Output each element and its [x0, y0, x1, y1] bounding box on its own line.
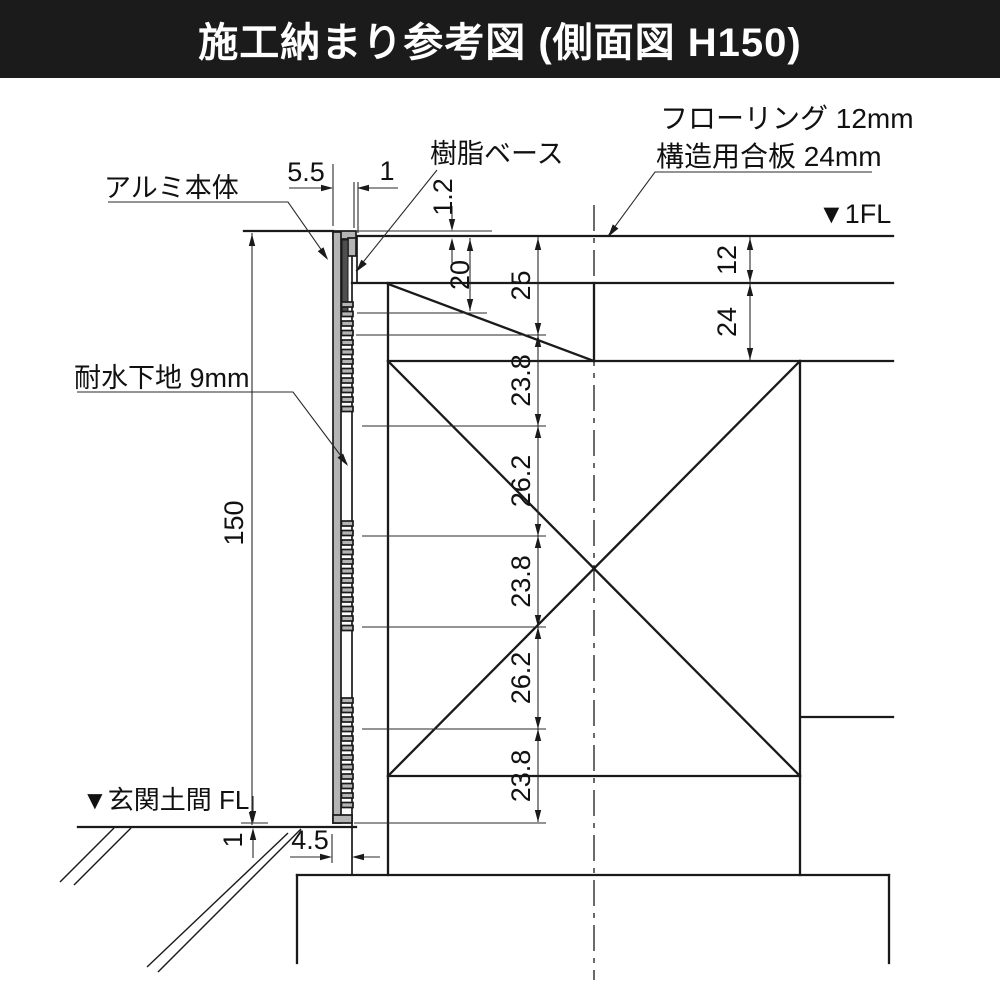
dimension-lines — [252, 188, 750, 858]
profile-web — [333, 232, 341, 823]
profile-top-hook — [348, 238, 356, 256]
arrowhead — [535, 627, 541, 639]
drawing-page: 施工納まり参考図 (側面図 H150) — [0, 0, 1000, 1000]
ground-hatch-4 — [147, 833, 288, 967]
profile-bottom-lip — [333, 815, 352, 823]
ground-hatch-1 — [74, 828, 131, 885]
ground-hatch-2 — [60, 828, 114, 882]
arrowhead — [535, 729, 541, 741]
dim-chain-3: 23.8 — [506, 555, 536, 608]
arrowhead — [535, 426, 541, 438]
arrowhead — [449, 219, 455, 231]
grip-tooth — [342, 774, 354, 779]
dim-1-bottom: 1 — [218, 832, 248, 847]
grip-tooth — [342, 312, 354, 317]
construction-detail-drawing: フローリング 12mm 構造用合板 24mm アルミ本体 樹脂ベース 耐水下地 … — [0, 0, 1000, 1000]
text-labels: フローリング 12mm 構造用合板 24mm アルミ本体 樹脂ベース 耐水下地 … — [74, 103, 914, 855]
arrowhead — [747, 348, 753, 360]
grip-tooth — [342, 708, 354, 713]
first-floor-marker: ▼1FL — [818, 199, 891, 229]
grip-tooth — [342, 340, 354, 345]
grip-tooth — [342, 727, 354, 732]
dim-1-2: 1.2 — [428, 178, 458, 216]
arrowhead — [352, 854, 364, 860]
arrowhead — [747, 238, 753, 250]
arrowhead — [249, 234, 255, 246]
grip-tooth — [342, 550, 354, 555]
drawing-title: 施工納まり参考図 (側面図 H150) — [198, 10, 802, 68]
arrowhead — [535, 810, 541, 822]
dim-chain-0: 25 — [506, 270, 536, 300]
arrowhead — [535, 323, 541, 335]
arrowhead — [467, 239, 473, 251]
grip-tooth — [342, 793, 354, 798]
arrowhead — [535, 238, 541, 250]
grip-tooth — [342, 559, 354, 564]
dim-4-5: 4.5 — [291, 825, 329, 855]
grip-tooth — [342, 521, 354, 526]
profile-grip-teeth — [342, 302, 354, 808]
arrowhead — [467, 299, 473, 311]
arrowhead — [747, 270, 753, 282]
grip-tooth — [342, 717, 354, 722]
aluminum-body-label: アルミ本体 — [104, 173, 239, 203]
flooring-label: フローリング 12mm — [660, 103, 914, 134]
arrowhead — [747, 284, 753, 296]
arrowhead — [318, 247, 328, 260]
dim-24: 24 — [712, 307, 742, 337]
dim-5-5: 5.5 — [287, 157, 325, 187]
grip-tooth — [342, 616, 354, 621]
grip-tooth — [342, 588, 354, 593]
grip-tooth — [342, 698, 354, 703]
arrowhead — [357, 185, 369, 191]
arrowhead — [449, 238, 455, 250]
grip-tooth — [342, 784, 354, 789]
arrowhead — [535, 414, 541, 426]
grip-tooth — [342, 765, 354, 770]
arrowhead — [250, 828, 256, 840]
grip-tooth — [342, 359, 354, 364]
grip-tooth — [342, 569, 354, 574]
grip-tooth — [342, 378, 354, 383]
dim-chain-1: 23.8 — [506, 354, 536, 407]
grip-tooth — [342, 540, 354, 545]
grip-tooth — [342, 597, 354, 602]
grip-tooth — [342, 369, 354, 374]
foundation — [60, 827, 889, 972]
grip-tooth — [342, 302, 354, 307]
grip-tooth — [342, 407, 354, 412]
grip-tooth — [342, 803, 354, 808]
grip-tooth — [342, 746, 354, 751]
arrowhead — [535, 615, 541, 627]
grip-tooth — [342, 755, 354, 760]
leader-substrate — [77, 392, 347, 464]
dimension-arrowheads — [249, 185, 753, 860]
grip-tooth — [342, 531, 354, 536]
grip-tooth — [342, 578, 354, 583]
extension-lines — [241, 164, 546, 863]
grip-tooth — [342, 736, 354, 741]
dim-12: 12 — [712, 245, 742, 275]
dim-chain-4: 26.2 — [506, 652, 536, 705]
arrowhead — [535, 536, 541, 548]
framing-x-brace-box — [388, 283, 893, 875]
title-bar: 施工納まり参考図 (側面図 H150) — [0, 0, 1000, 78]
entrance-floor-marker: ▼玄関土間 FL — [82, 785, 249, 815]
dim-chain-5: 23.8 — [506, 750, 536, 803]
grip-tooth — [342, 350, 354, 355]
resin-base-label: 樹脂ベース — [430, 139, 564, 169]
arrowhead — [535, 717, 541, 729]
grip-tooth — [342, 321, 354, 326]
dim-20: 20 — [445, 260, 475, 290]
upper-diagonal-line — [388, 284, 594, 361]
dim-150: 150 — [219, 500, 249, 545]
substrate-label: 耐水下地 9mm — [74, 363, 250, 393]
grip-tooth — [342, 331, 354, 336]
plywood-label: 構造用合板 24mm — [656, 141, 882, 172]
grip-tooth — [342, 607, 354, 612]
arrowhead — [535, 524, 541, 536]
grip-tooth — [342, 626, 354, 631]
dim-1-top: 1 — [379, 156, 394, 186]
grip-tooth — [342, 388, 354, 393]
ground-hatch-3 — [158, 829, 301, 972]
dim-chain-2: 26.2 — [506, 455, 536, 508]
grip-tooth — [342, 397, 354, 402]
